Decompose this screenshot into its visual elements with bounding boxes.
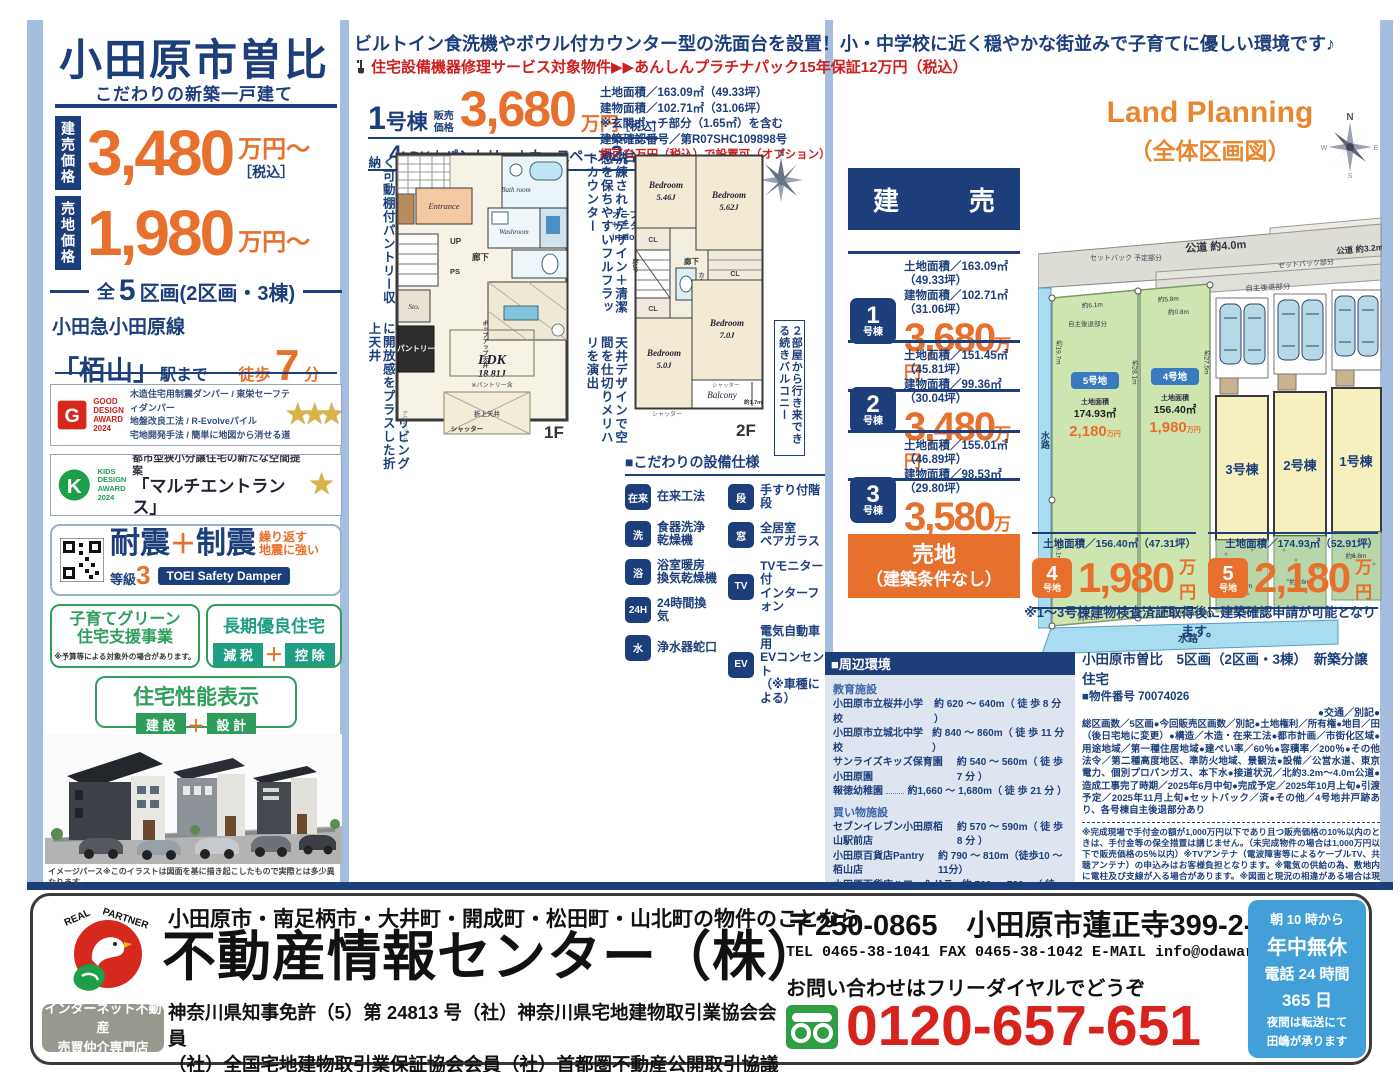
price1-tag: 建売価格 xyxy=(55,116,81,190)
rail-line: 小田急小田原線 xyxy=(52,312,344,339)
environment-title: ■周辺環境 xyxy=(825,652,1075,675)
kosodate-line2: 住宅支援事業 xyxy=(52,629,198,647)
price-row-urichi: 売地価格 1,980 万円〜 xyxy=(55,194,340,272)
map-jishu-plot-label: 自主後退部分 xyxy=(1068,319,1108,328)
dishwasher-icon: 洗 xyxy=(625,521,651,547)
wrench-icon xyxy=(354,59,367,74)
pair-glass-icon: 窓 xyxy=(728,522,754,548)
kids-design-line2: 「マルチエントランス」 xyxy=(132,477,302,516)
row3-land: 土地面積／155.01㎡（46.89坪） xyxy=(904,439,1018,468)
walk-unit: 分 xyxy=(304,367,320,384)
fp1-ldk-size: 18.81J xyxy=(478,369,507,380)
qr-code-icon xyxy=(60,538,104,582)
tv-interphone-icon: TV xyxy=(728,574,754,600)
seinou-tag2: 設 計 xyxy=(207,713,257,736)
real-partner-logo: REAL PARTNER xyxy=(52,902,156,1006)
property-fine-print: ※完成現場で手付金の額が1,000万円以下であり且つ販売価格の10％以内のときは… xyxy=(1082,822,1380,880)
grade-label: 等級 xyxy=(110,572,136,587)
kids-design-logo-icon: K xyxy=(57,466,92,504)
svg-text:156.40㎡: 156.40㎡ xyxy=(1154,403,1197,416)
fp1-ps-label: PS xyxy=(450,267,460,276)
fp2-balcony-label: Balcony xyxy=(707,390,737,400)
seinou-tag1: 建 設 xyxy=(136,713,186,736)
car-icon xyxy=(1244,304,1265,364)
env-row: 小田原市立城北中学校約 840 〜 860m（ 徒 歩 11 分 ） xyxy=(833,727,1067,756)
handrail-stairs-icon: 段 xyxy=(728,484,754,510)
seinou-box: 住宅性能表示 建 設 ＋ 設 計 xyxy=(95,676,297,728)
kosodate-note: ※予算等による対象外の場合があります。 xyxy=(52,651,198,662)
lot5-unit: 万円 xyxy=(1355,553,1378,603)
taishin-word: 耐震 xyxy=(110,529,170,559)
property-number: ■物件番号 70074026 xyxy=(1082,688,1380,704)
equipment-item: EV電気自動車用 EVコンセント （※車種による） xyxy=(728,625,825,706)
car-icon xyxy=(1220,304,1241,364)
unit1-detail-porch: ※玄関ポーチ部分（1.65㎡）を含む xyxy=(600,117,835,133)
good-design-line2: 地盤改良工法 / R-Evolveパイル xyxy=(130,415,292,429)
choki-tag2: 控 除 xyxy=(285,643,335,666)
equipment-item: 24H24時間換気 xyxy=(625,597,718,624)
lot4-unit: 万円 xyxy=(1179,553,1196,603)
fp1-up-label: UP xyxy=(450,237,462,246)
page-title: 小田原市曽比 xyxy=(48,26,340,88)
flyer-page: 小田原市曽比 こだわりの新築一戸建て 建売価格 3,480 万円〜 ［税込］ 売… xyxy=(0,0,1400,1072)
footer-phone-row: 0120-657-651 xyxy=(786,998,1201,1055)
grade-num: 3 xyxy=(136,560,150,590)
price1-tax: ［税込］ xyxy=(238,162,310,182)
lot5-land: 土地面積／174.93㎡（52.91坪） xyxy=(1208,536,1378,551)
unit1-detail-bldg: 建物面積／102.71㎡（31.06坪） xyxy=(600,102,835,118)
kids-design-star-icon: ★ xyxy=(308,470,335,500)
unit1-num: 1 xyxy=(368,100,386,136)
lots-pre: 全 xyxy=(97,278,115,304)
taturi-header: 建 売 xyxy=(848,168,1020,230)
svg-text:土地面積: 土地面積 xyxy=(1081,397,1110,406)
house-render-illustration xyxy=(45,734,342,864)
lots-num: 5 xyxy=(119,274,136,308)
header-catch-copy: ビルトイン食洗機やボウル付カウンター型の洗面台を設置！小・中学校に近く穏やかな街… xyxy=(354,30,1384,56)
car-icon xyxy=(1302,300,1323,360)
lot4-badge: 4号地 xyxy=(1032,558,1072,598)
equipment-title: ■こだわりの設備仕様 xyxy=(625,452,825,476)
unit1-detail-land: 土地面積／163.09㎡（49.33坪） xyxy=(600,86,835,102)
equipment-item: 段手すり付階段 xyxy=(728,484,825,511)
fp2-bed3-label: Bedroom xyxy=(709,318,744,328)
seishin-sub: 繰り返す 地震に強い xyxy=(259,531,319,557)
fp2-stairs xyxy=(636,250,670,298)
fp2-hall-label: 廊下 xyxy=(684,256,699,266)
page-subtitle: こだわりの新築一戸建て xyxy=(48,80,340,105)
urichi-subtitle: （建築条件なし） xyxy=(866,569,1002,591)
price1-unit-wrap: 万円〜 ［税込］ xyxy=(238,124,310,182)
env-row: 小田原市立桜井小学校約 620 〜 640m（ 徒 歩 8 分 ） xyxy=(833,698,1067,727)
urichi-lot4-block: 土地面積／156.40㎡（47.31坪） 4号地 1,980 万円 xyxy=(1032,532,1196,609)
svg-text:2号棟: 2号棟 xyxy=(1283,458,1317,473)
fp1-floor-label: 1F xyxy=(544,423,564,442)
unit-badge-1: 1号棟 xyxy=(850,298,896,344)
urichi-note: ※1〜3号棟建物検査済証取得後に建築確認申請が可能となります。 xyxy=(1020,602,1380,640)
fp1-oriage-label: 折上天井 xyxy=(474,409,501,418)
choki-tag1: 減 税 xyxy=(213,643,263,666)
walk-num: 7 xyxy=(275,341,299,390)
price2-value: 1,980 xyxy=(87,201,232,265)
unit1-price-label: 販売 価格 xyxy=(434,111,454,134)
fp2-bed4-label: Bedroom xyxy=(646,348,681,358)
car-icon xyxy=(1358,296,1378,356)
fp2-cl3-label: CL xyxy=(648,306,658,313)
urichi-title: 売地 xyxy=(912,541,956,570)
env-row: サンライズキッズ保育園小田原園約 540 〜 560m（ 徒 歩 7 分 ） xyxy=(833,756,1067,785)
lot4-rule-top xyxy=(1032,532,1196,534)
fp2-balcony-depth: 約1.7m xyxy=(744,398,762,406)
map-setback-left-label: セットバック 予定部分 xyxy=(1090,253,1162,262)
fp2-bed2-size: 5.62J xyxy=(719,202,739,212)
choki-plus: ＋ xyxy=(265,641,283,667)
kosodate-box: 子育てグリーン 住宅支援事業 ※予算等による対象外の場合があります。 xyxy=(50,604,200,668)
lot5-price: 2,180 xyxy=(1254,557,1349,599)
fp2-bed3-size: 7.0J xyxy=(720,330,736,340)
fp2-bed1-label: Bedroom xyxy=(648,180,683,190)
toei-safety-damper-badge: TOEI Safety Damper xyxy=(158,567,289,585)
fp1-entrance-label: Entrance xyxy=(427,201,459,211)
footer-internet-badge: インターネット不動産 売買仲介専門店 xyxy=(42,1004,164,1052)
kosodate-line1: 子育てグリーン xyxy=(52,611,198,629)
row2-bldg: 建物面積／99.36㎡（30.04坪） xyxy=(904,378,1018,407)
footer-license1: 神奈川県知事免許（5）第 24813 号（社）神奈川県宅地建物取引業協会会員 xyxy=(168,1000,788,1052)
fp1-pantry-label: パントリー xyxy=(397,343,435,353)
fp1-ldk-label: LDK xyxy=(477,353,508,368)
render-caption: イメージパース※このイラストは図面を基に描き起こしたもので実際とは多少異なります… xyxy=(48,866,340,888)
bathtub-icon xyxy=(530,162,562,180)
fp2-bed2-label: Bedroom xyxy=(711,190,746,200)
price2-unit: 万円〜 xyxy=(238,211,310,255)
urichi-header-box: 売地 （建築条件なし） xyxy=(848,534,1020,598)
lot4-land: 土地面積／156.40㎡（47.31坪） xyxy=(1032,536,1196,551)
lot4-price: 1,980 xyxy=(1078,557,1173,599)
car-icon xyxy=(1335,296,1355,356)
lots-line: 全 5 区画(2区画・3棟) xyxy=(50,274,342,308)
header-service-text: 住宅設備機器修理サービス対象物件▶▶あんしんプラチナパック15年保証12万円（税… xyxy=(371,56,967,77)
map-compass-icon: N W E S xyxy=(1318,108,1382,180)
freedial-icon xyxy=(786,1005,838,1049)
env-row: 報徳幼稚園約1,660 〜 1,680m（ 徒 歩 21 分 ） xyxy=(833,785,1067,800)
equipment-item: 浴浴室暖房 換気乾燥機 xyxy=(625,559,718,586)
price2-tag: 売地価格 xyxy=(55,196,81,270)
walk-label: 徒歩 xyxy=(238,367,270,384)
fp2-shutter1: シャッター xyxy=(712,381,740,389)
car-icon xyxy=(1278,300,1299,360)
env-row: セブンイレブン小田原栢山駅前店約 570 〜 590m（ 徒 歩 8 分 ） xyxy=(833,821,1067,850)
land-planning-subtitle: （全体区画図） xyxy=(1060,132,1360,166)
footer-address: 〒250-0865 小田原市蓮正寺399-2-10 xyxy=(786,902,1286,944)
property-outline: 小田原市曽比 5区画（2区画・3棟） 新築分譲住宅 ■物件番号 70074026… xyxy=(1082,648,1380,880)
svg-text:174.93㎡: 174.93㎡ xyxy=(1074,407,1117,420)
lots-line-right-rule xyxy=(303,290,342,293)
fp1-shutter-label: シャッター xyxy=(451,424,484,433)
fp2-bed4-size: 5.0J xyxy=(657,360,673,370)
station-rule xyxy=(55,372,337,374)
lots-line-left-rule xyxy=(50,290,89,293)
good-design-stars-icon: ★★★ xyxy=(284,400,335,430)
conventional-construction-icon: 在来 xyxy=(625,484,651,510)
left-accent-bar xyxy=(27,20,43,882)
bathroom-dryer-icon: 浴 xyxy=(625,559,651,585)
fp1-stairs xyxy=(398,234,438,286)
footer-company-name: 不動産情報センター（株） xyxy=(162,930,822,984)
footer-contact-line: TEL 0465-38-1041 FAX 0465-38-1042 E-MAIL… xyxy=(786,944,1326,961)
unit-badge-2: 2号棟 xyxy=(850,387,896,433)
footer-hours-box: 朝 10 時から 年中無休 電話 24 時間 365 日 夜間は転送にて 田嶋が… xyxy=(1248,900,1366,1058)
kids-design-award-label: KIDS DESIGN AWARD 2024 xyxy=(98,468,127,503)
fp1-accent-label: アクセントクロス xyxy=(401,410,408,444)
equipment-item: 洗食器洗浄 乾燥機 xyxy=(625,521,718,548)
ev-outlet-icon: EV xyxy=(728,652,754,678)
svg-text:S: S xyxy=(1348,173,1353,180)
good-design-line1: 木造住宅用制震ダンパー / 東栄セーフティダンパー xyxy=(130,388,292,415)
map-water-left-label: 水路 xyxy=(1040,430,1051,450)
price1-value: 3,480 xyxy=(87,121,232,185)
fp2-cl2-label: CL xyxy=(730,271,740,278)
svg-text:REAL: REAL xyxy=(63,908,92,929)
svg-text:E: E xyxy=(1374,145,1379,152)
fp2-shutter2: シャッター xyxy=(652,410,682,418)
floorplan-1f: Entrance Bath room Washroom UP 廊下 PS Sto… xyxy=(392,148,572,444)
row1-bldg: 建物面積／102.71㎡（31.06坪） xyxy=(904,289,1018,318)
equipment-item: 窓全居室 ペアガラス xyxy=(728,522,825,549)
lot5-badge: 5号地 xyxy=(1208,558,1248,598)
kids-design-award-box: K KIDS DESIGN AWARD 2024 都市型狭小分譲住宅の新たな空間… xyxy=(50,454,342,516)
unit-badge-3: 3号棟 xyxy=(850,477,896,523)
lots-post: 区画(2区画・3棟) xyxy=(140,277,296,306)
svg-text:K: K xyxy=(67,475,82,498)
row2-land: 土地面積／151.45㎡（45.81坪） xyxy=(904,349,1018,378)
svg-text:5号地: 5号地 xyxy=(1083,375,1108,387)
water-purifier-icon: 水 xyxy=(625,635,651,661)
station-block: 小田急小田原線 「栢山」駅まで 徒歩 7 分 xyxy=(52,312,344,391)
row1-land: 土地面積／163.09㎡（49.33坪） xyxy=(904,260,1018,289)
station-suffix: 駅まで xyxy=(160,367,208,384)
property-traffic: ●交通／別記● xyxy=(1082,704,1380,719)
taishin-plus: ＋ xyxy=(170,531,196,557)
price-row-taturi: 建売価格 3,480 万円〜 ［税込］ xyxy=(55,114,340,192)
land-planning-title: Land Planning xyxy=(1060,96,1360,131)
header-service-line: 住宅設備機器修理サービス対象物件▶▶あんしんプラチナパック15年保証12万円（税… xyxy=(354,56,967,77)
price1-unit: 万円〜 xyxy=(238,138,310,162)
property-title: 小田原市曽比 5区画（2区画・3棟） 新築分譲住宅 xyxy=(1082,648,1380,688)
good-design-line3: 宅地開発手法 / 簡単に地図から消せる道 xyxy=(130,429,292,443)
fp1-washroom-label: Washroom xyxy=(499,228,528,236)
fp1-toilet-room xyxy=(512,250,567,278)
row3-price: 3,580 xyxy=(904,495,994,539)
fp1-ldk-note: ※パントリー含 xyxy=(471,381,512,389)
property-body: 総区画数／5区画●今回販売区画数／別記●土地権利／所有権●地目／田（後日宅地に変… xyxy=(1082,719,1380,818)
urichi-lot5-block: 土地面積／174.93㎡（52.91坪） 5号地 2,180 万円 xyxy=(1208,532,1378,609)
kids-design-line1: 都市型狭小分譲住宅の新たな空間提案 xyxy=(132,454,302,477)
fp1-sto-label: Sto. xyxy=(408,302,420,311)
fp1-hall-label: 廊下 xyxy=(472,252,490,262)
toilet-icon xyxy=(542,254,558,274)
good-design-award-label: GOOD DESIGN AWARD 2024 xyxy=(93,397,124,434)
equipment-item: 水浄水器蛇口 xyxy=(625,635,718,661)
seishin-word: 制震 xyxy=(196,529,256,559)
env-row: 小田原百貨店Pantry栢山店約 790 〜 810m（徒歩10 〜 11分） xyxy=(833,850,1067,879)
row3-bldg: 建物面積／98.53㎡（29.80坪） xyxy=(904,468,1018,497)
svg-text:G: G xyxy=(64,405,79,427)
lot5-rule-top xyxy=(1208,532,1378,534)
choki-box: 長期優良住宅 減 税 ＋ 控 除 xyxy=(206,604,342,668)
env-section-education: 教育施設 xyxy=(833,681,1067,697)
unit1-suffix: 号棟 xyxy=(386,111,428,134)
svg-text:1号棟: 1号棟 xyxy=(1339,454,1373,469)
environment-box: ■周辺環境 教育施設 小田原市立桜井小学校約 620 〜 640m（ 徒 歩 8… xyxy=(825,652,1075,882)
floorplan-2f: Bedroom 5.46J Bedroom 5.62J CL DN 床UP 廊下… xyxy=(632,150,768,442)
fp1-dining-area xyxy=(488,282,567,340)
good-design-logo-icon: G xyxy=(57,396,87,434)
annotation-balcony: ２部屋から行き来できる続きバルコニー xyxy=(774,320,805,456)
annotation-ceiling: 天井デザインで空間を仕切りメリハリを演出 xyxy=(584,336,627,456)
unit1-price: 3,680 xyxy=(460,84,575,134)
fp2-bed1-size: 5.46J xyxy=(656,192,676,202)
seismic-box: 耐震 ＋ 制震 繰り返す 地震に強い 等級3 TOEI Safety Dampe… xyxy=(50,524,342,596)
svg-text:N: N xyxy=(778,148,785,158)
equipment-section: ■こだわりの設備仕様 在来在来工法 洗食器洗浄 乾燥機 浴浴室暖房 換気乾燥機 … xyxy=(625,452,825,705)
equipment-item: 在来在来工法 xyxy=(625,484,718,510)
svg-text:3号棟: 3号棟 xyxy=(1225,462,1259,477)
station-name: 「栢山」 xyxy=(52,356,160,386)
fp2-cl1-label: CL xyxy=(648,237,658,244)
footer-licenses: 神奈川県知事免許（5）第 24813 号（社）神奈川県宅地建物取引業協会会員 （… xyxy=(168,1000,788,1072)
map-m08: 約0.8m xyxy=(1168,307,1189,316)
good-design-award-box: G GOOD DESIGN AWARD 2024 木造住宅用制震ダンパー / 東… xyxy=(50,384,342,446)
fp1-porch-step xyxy=(398,194,414,224)
footer-license2: （社）全国宅地建物取引業保証協会会員（社）首都圏不動産公開取引協議会加盟 xyxy=(168,1052,788,1072)
svg-text:W: W xyxy=(1321,145,1328,152)
footer-phone-number: 0120-657-651 xyxy=(846,998,1201,1055)
choki-title: 長期優良住宅 xyxy=(208,612,340,637)
title-rule xyxy=(55,104,337,108)
env-section-shopping: 買い物施設 xyxy=(833,804,1067,820)
equipment-item: TVTVモニター付 インターフォン xyxy=(728,560,825,614)
fp2-floor-label: 2F xyxy=(736,421,756,440)
seinou-title: 住宅性能表示 xyxy=(97,681,295,711)
fp1-bath-label: Bath room xyxy=(501,186,531,194)
ventilation-icon: 24H xyxy=(625,597,651,623)
svg-text:N: N xyxy=(1346,112,1353,123)
svg-text:4号地: 4号地 xyxy=(1163,371,1188,383)
svg-text:土地面積: 土地面積 xyxy=(1161,393,1190,402)
